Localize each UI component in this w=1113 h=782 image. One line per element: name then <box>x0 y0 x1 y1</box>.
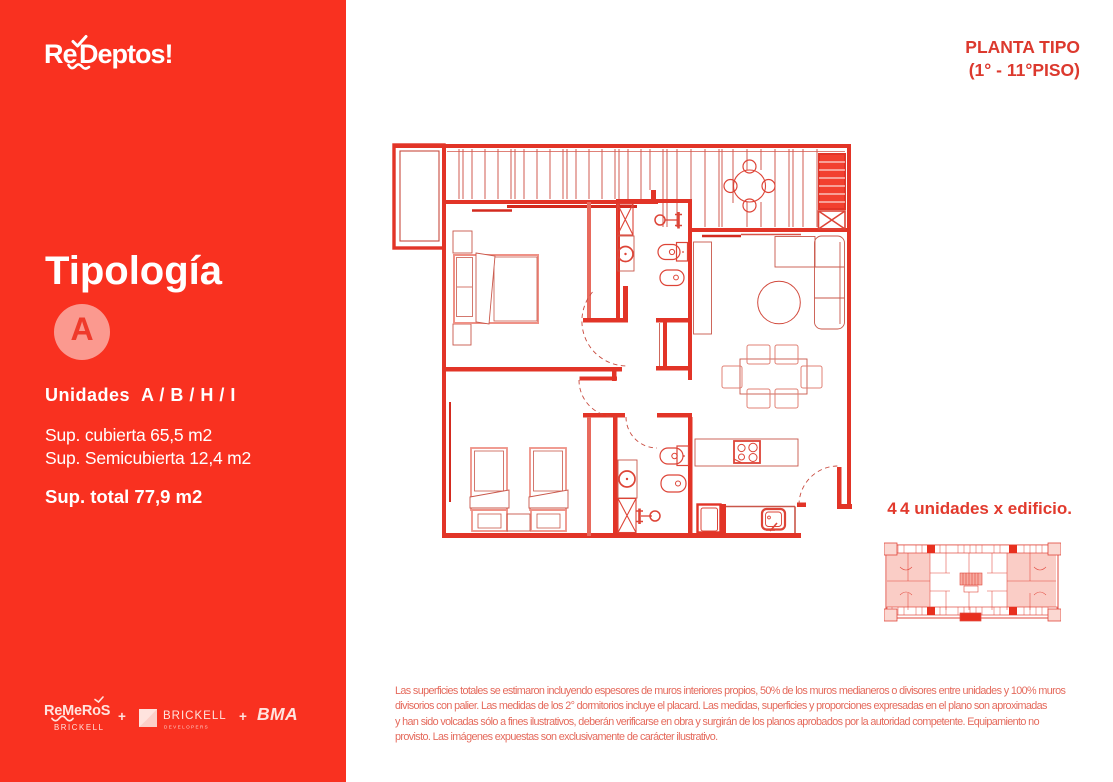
svg-text:DEVELOPERS: DEVELOPERS <box>164 725 209 730</box>
svg-text:BRICKELL: BRICKELL <box>163 710 227 722</box>
svg-text:+: + <box>118 709 126 724</box>
svg-text:BMA: BMA <box>257 704 298 724</box>
svg-text:+: + <box>239 709 247 724</box>
svg-text:BRICKELL: BRICKELL <box>54 723 105 732</box>
svg-text:ReMeRoS: ReMeRoS <box>44 703 111 719</box>
